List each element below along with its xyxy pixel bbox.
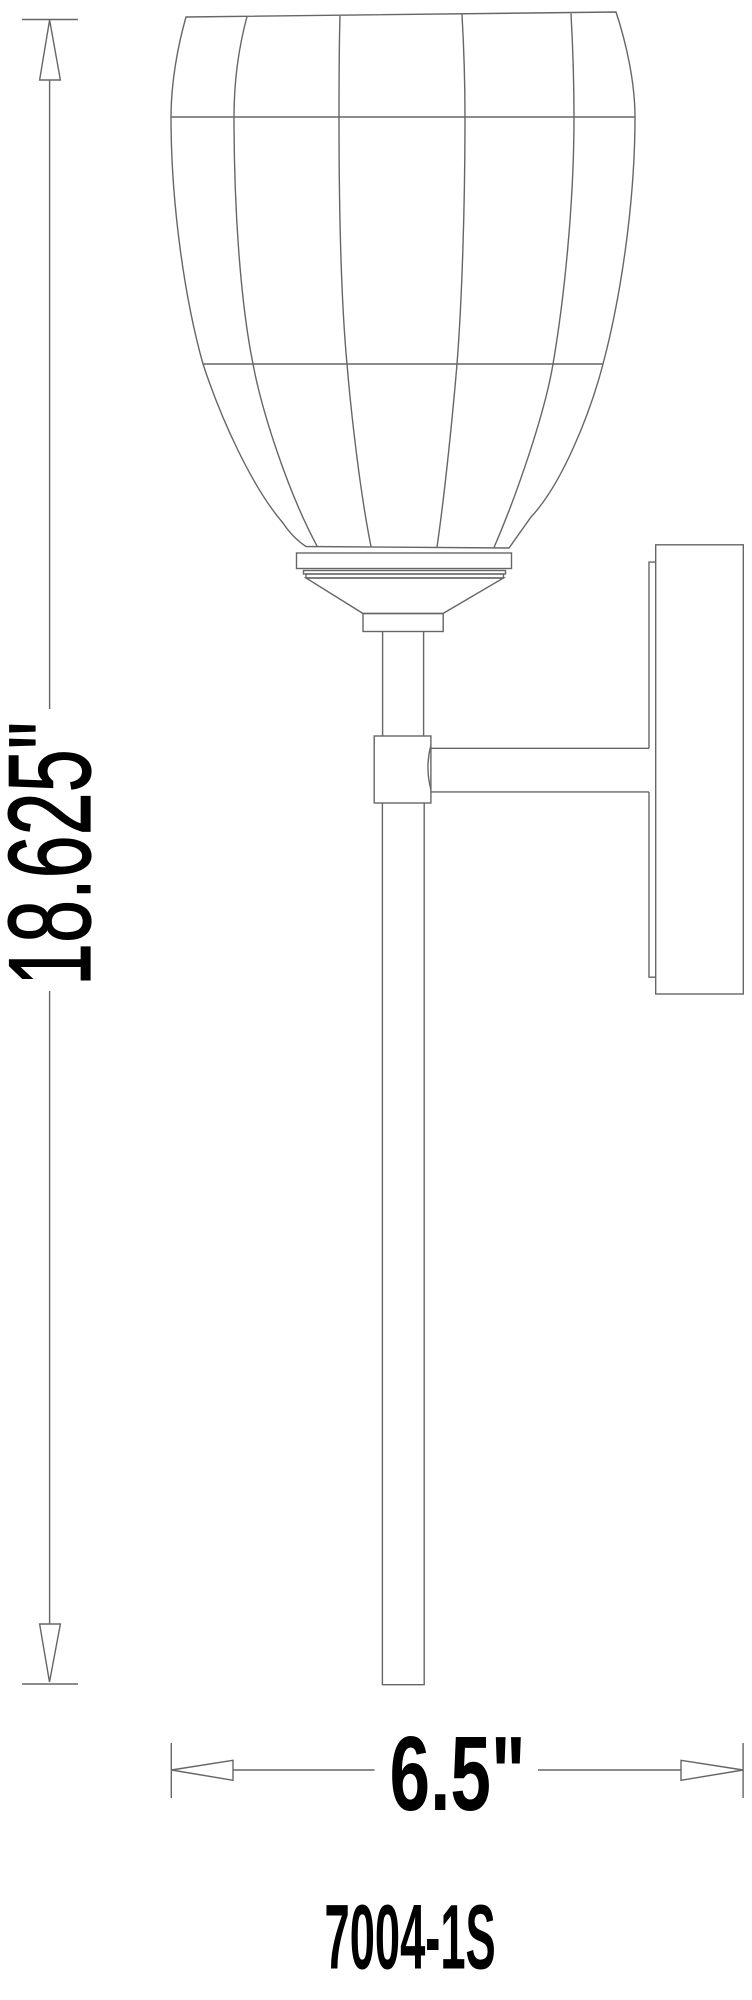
svg-text:7004-1S: 7004-1S [325,1886,496,1989]
svg-text:6.5": 6.5" [390,1716,526,1834]
svg-text:18.625": 18.625" [0,722,116,986]
